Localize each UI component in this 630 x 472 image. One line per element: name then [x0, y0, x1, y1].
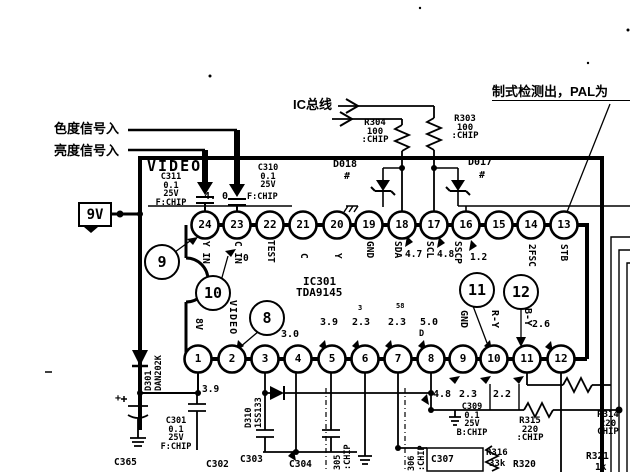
- supply-tick: [84, 227, 98, 233]
- mark-58: 58: [396, 303, 404, 310]
- supply-9v-badge: 9V: [78, 202, 112, 227]
- v-pin24: 4. 0: [204, 192, 228, 202]
- pin1-label: 8V: [193, 318, 203, 330]
- r316-label: R316: [486, 449, 508, 458]
- v-below-10: 2.3: [459, 390, 477, 400]
- chroma-arrow-shaft: [234, 130, 240, 184]
- d310-part: 1SS133: [255, 397, 264, 428]
- resistor-r315-sym: [524, 403, 553, 417]
- pin20-label: Y: [333, 253, 343, 259]
- pin21-label: C: [299, 253, 309, 259]
- pin-12: 12: [547, 345, 575, 372]
- c306-label: 306: [408, 456, 417, 471]
- pin-7: 7: [384, 345, 412, 372]
- v-pin11: 2.6: [532, 320, 550, 330]
- d301-label: D301: [145, 371, 154, 391]
- pin-6: 6: [351, 345, 379, 372]
- i2c-bus-wires: [332, 99, 441, 212]
- pin23-label: C IN: [233, 241, 243, 264]
- r303-label: R303100:CHIP: [442, 115, 488, 141]
- r314-label: R314220CHIP: [586, 411, 630, 437]
- pin-2: 2: [218, 345, 246, 372]
- c306-type: :CHIP: [418, 445, 427, 471]
- v-pin6: 2.3: [352, 318, 370, 328]
- v-pin16: 1.2: [470, 253, 487, 263]
- pin9-label: GND: [458, 310, 468, 328]
- v-pin8: 5.0: [420, 318, 438, 328]
- r304-label: R304100:CHIP: [352, 119, 398, 145]
- c310-label: C3100.1 25V: [248, 164, 288, 190]
- schematic-scan: 色度信号入 亮度信号入 IC总线 制式检测出，PAL为 9V VIDEO IC3…: [0, 0, 630, 472]
- pin-5: 5: [318, 345, 346, 372]
- pin19-label: GND: [365, 241, 375, 258]
- c310-type-label: F:CHIP: [247, 193, 278, 202]
- v-pin23: 0: [243, 254, 249, 264]
- d310-label: D310: [245, 408, 254, 428]
- c307-label: C307: [431, 455, 454, 465]
- c365-label: C365: [114, 458, 137, 468]
- r316-value: 33k: [489, 460, 505, 469]
- v-below-8: 4.8: [433, 390, 451, 400]
- capacitor-c365: [121, 393, 148, 446]
- v-pin7: 2.3: [388, 318, 406, 328]
- pin-8: 8: [417, 345, 445, 372]
- r321-value: 1k: [595, 463, 606, 472]
- resistor-r314-sym: [563, 378, 592, 392]
- d018-label: D018: [333, 160, 357, 170]
- c305-type: :CHIP: [344, 444, 353, 470]
- pin17-label: SCL: [425, 241, 435, 258]
- diode-d310: [270, 386, 284, 400]
- callout-11: 11: [460, 273, 494, 307]
- c311-label: C3110.1 25VF:CHIP: [146, 173, 196, 207]
- diode-d018: [371, 168, 402, 207]
- pin-21: 21: [289, 211, 317, 238]
- mark-d: D: [419, 330, 424, 339]
- pin-16: 16: [452, 211, 480, 238]
- callout-8: 8: [250, 301, 284, 335]
- pin11-label: B-Y: [522, 308, 532, 326]
- r321-label: R321: [586, 452, 609, 462]
- c303-label: C303: [240, 455, 263, 465]
- pin22-label: TEST: [266, 240, 276, 263]
- v-below-11: 2.2: [493, 390, 511, 400]
- diode-d301: [132, 350, 148, 366]
- pin-24: 24: [191, 211, 219, 238]
- pin-19: 19: [355, 211, 383, 238]
- pin-22: 22: [256, 211, 284, 238]
- callout-9: 9: [145, 245, 179, 279]
- pin-20: 20: [323, 211, 351, 238]
- pin-10: 10: [480, 345, 508, 372]
- callout-12: 12: [504, 275, 538, 309]
- pal-detect-label: 制式检测出，PAL为: [492, 85, 630, 101]
- callout-9-num: 9: [157, 253, 166, 271]
- pin-1: 1: [184, 345, 212, 372]
- pin10-label: R-Y: [489, 310, 499, 328]
- pin-3: 3: [251, 345, 279, 372]
- scan-speckles: [209, 7, 630, 78]
- ic-part-label: TDA9145: [296, 287, 342, 298]
- pin-4: 4: [284, 345, 312, 372]
- callout-12-num: 12: [512, 283, 530, 301]
- callout-10: 10: [196, 276, 230, 310]
- pin24-label: Y IN: [201, 241, 211, 264]
- callout-10-num: 10: [204, 284, 222, 302]
- callout-11-num: 11: [468, 281, 486, 299]
- v-pin4: 3.0: [281, 330, 299, 340]
- v-pin17: 4.8: [437, 250, 454, 260]
- diode-d017: [434, 168, 470, 206]
- plus-mark: [121, 396, 127, 402]
- capacitor-c305: [322, 372, 340, 452]
- pin14-label: 2FSC: [527, 244, 537, 267]
- pin13-label: STB: [559, 244, 569, 261]
- c301-label: C3010.1 25VF:CHIP: [152, 417, 200, 451]
- chroma-arrow-head: [229, 184, 245, 197]
- callout-8-num: 8: [262, 309, 271, 327]
- c305-label: 305: [334, 455, 343, 470]
- resistor-r303: [427, 118, 441, 150]
- r315-label: R315220:CHIP: [508, 417, 552, 443]
- pin-18: 18: [388, 211, 416, 238]
- gnd-c365: [130, 438, 146, 446]
- pin-14: 14: [517, 211, 545, 238]
- v-pin18: 4.7: [405, 250, 422, 260]
- pin7-wire: [398, 372, 427, 448]
- c302-label: C302: [206, 460, 229, 470]
- chroma-in-label: 色度信号入: [54, 122, 119, 135]
- pin-9: 9: [449, 345, 477, 372]
- pin-11: 11: [513, 345, 541, 372]
- pin6-gnd: [358, 372, 372, 464]
- c304-label: C304: [289, 460, 312, 470]
- luma-in-label: 亮度信号入: [54, 144, 119, 157]
- luma-arrow-shaft: [202, 150, 208, 182]
- d017-mark: #: [479, 171, 485, 181]
- pin18-label: SDA: [393, 241, 403, 258]
- pin-15: 15: [485, 211, 513, 238]
- mark-plus: +: [115, 394, 121, 404]
- d018-mark: #: [344, 172, 350, 182]
- pin-23: 23: [223, 211, 251, 238]
- c309-label: C3090.1 25VB:CHIP: [448, 403, 496, 437]
- pin-17: 17: [420, 211, 448, 238]
- v-pin5: 3.9: [320, 318, 338, 328]
- pin-13: 13: [550, 211, 578, 238]
- pin2-label: VIDEO: [227, 300, 237, 335]
- v-pin1: 3.9: [202, 385, 219, 395]
- d017-label: D017: [468, 158, 492, 168]
- mark-3: 3: [358, 305, 362, 312]
- d301-part: DAN202K: [155, 355, 164, 391]
- r320-label: R320: [513, 460, 536, 470]
- i2c-bus-label: IC总线: [293, 98, 332, 111]
